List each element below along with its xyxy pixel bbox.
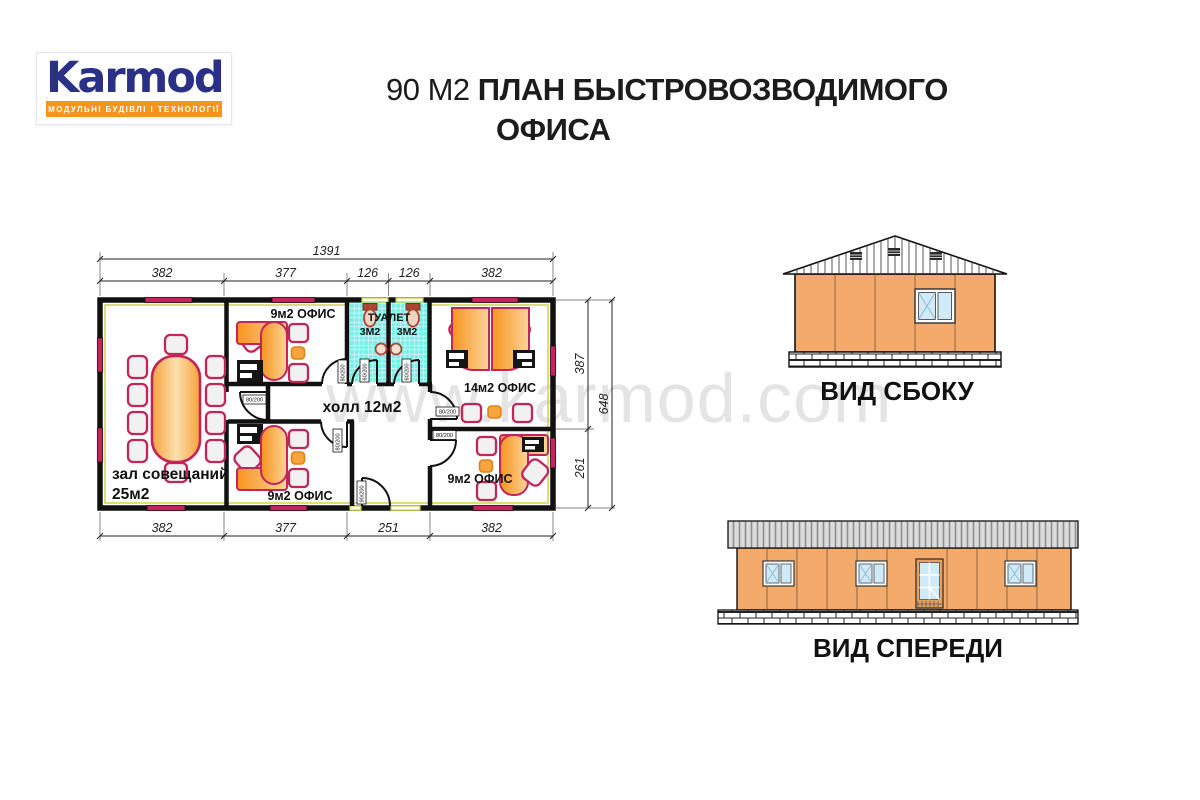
floor-plan: 80/200 80/200 80/200 60/200 60/200 80/20… <box>97 244 615 541</box>
room-label-toilet-area-left: 3М2 <box>360 326 381 338</box>
dim-bottom-3: 382 <box>481 521 502 535</box>
page-title: 90 M2 ПЛАН БЫСТРОВОЗВОДИМОГО ОФИСА <box>386 70 948 151</box>
title-line2: ОФИСА <box>496 110 948 150</box>
front-window-1 <box>763 561 794 586</box>
dim-total-height: 648 <box>597 394 611 415</box>
logo-tagline: МОДУЛЬНІ БУДІВЛІ І ТЕХНОЛОГІЇ <box>46 101 222 117</box>
logo-karmod: Karmod МОДУЛЬНІ БУДІВЛІ І ТЕХНОЛОГІЇ <box>36 52 232 125</box>
meeting-room-furniture <box>128 335 225 482</box>
dim-top-4: 382 <box>481 266 502 280</box>
dim-top-1: 377 <box>275 266 297 280</box>
dim-bottom-0: 382 <box>152 521 173 535</box>
dim-bottom-1: 377 <box>275 521 297 535</box>
dim-top-2: 126 <box>357 266 378 280</box>
room-label-hall: холл 12м2 <box>323 399 402 416</box>
dim-bottom-2: 251 <box>377 521 399 535</box>
front-view-drawing: ВИД СПЕРЕДИ <box>718 521 1078 663</box>
door-label-vestibule: 80/200 <box>246 398 263 404</box>
title-main: ПЛАН БЫСТРОВОЗВОДИМОГО <box>478 72 948 107</box>
title-line1: 90 M2 ПЛАН БЫСТРОВОЗВОДИМОГО <box>386 70 948 110</box>
front-window-3 <box>1005 561 1036 586</box>
dim-top-3: 126 <box>399 266 420 280</box>
front-roof <box>728 521 1078 548</box>
door-label-office-bottomleft: 80/200 <box>336 433 342 450</box>
door-label-office14: 80/200 <box>439 410 456 416</box>
door-label-entrance: 90/200 <box>360 485 366 502</box>
room-label-office9-bottomleft: 9м2 ОФИС <box>267 489 332 503</box>
front-window-2 <box>856 561 887 586</box>
room-label-office9-bottomright: 9м2 ОФИС <box>447 472 512 486</box>
front-view-label: ВИД СПЕРЕДИ <box>813 633 1003 663</box>
door-label-toilet-left: 60/200 <box>363 363 369 380</box>
page-background: www.karmod.com Karmod МОДУЛЬНІ БУДІВЛІ І… <box>0 0 1200 800</box>
side-wall <box>795 274 995 352</box>
room-label-meeting: зал совещаний <box>112 466 229 483</box>
dim-total-width: 1391 <box>313 244 341 258</box>
door-label-office-bottomright: 80/200 <box>436 433 453 439</box>
side-view-label: ВИД СБОКУ <box>820 376 974 406</box>
room-label-office14: 14м2 ОФИС <box>464 381 536 395</box>
side-view-drawing: ВИД СБОКУ <box>783 236 1007 406</box>
office-topleft-furniture <box>236 322 308 382</box>
room-label-office9-top: 9м2 ОФИС <box>270 307 335 321</box>
door-label-office-top: 80/200 <box>341 364 347 381</box>
room-label-toilet: ТУАЛЕТ <box>368 312 411 324</box>
side-foundation <box>789 352 1001 367</box>
room-label-meeting-area: 25м2 <box>112 486 149 503</box>
title-area: 90 M2 <box>386 72 470 107</box>
front-door <box>916 559 943 608</box>
logo-text: Karmod <box>46 57 222 100</box>
office-bottomleft-furniture <box>232 424 308 490</box>
dim-top-0: 382 <box>152 266 173 280</box>
office14-furniture <box>446 308 535 422</box>
room-label-toilet-area-right: 3М2 <box>397 326 418 338</box>
dim-right-0: 387 <box>573 353 587 375</box>
office-bottomright-furniture <box>477 435 551 500</box>
front-foundation <box>718 610 1078 624</box>
side-window <box>915 289 955 323</box>
door-label-toilet-right: 60/200 <box>405 363 411 380</box>
dim-right-1: 261 <box>573 458 587 480</box>
